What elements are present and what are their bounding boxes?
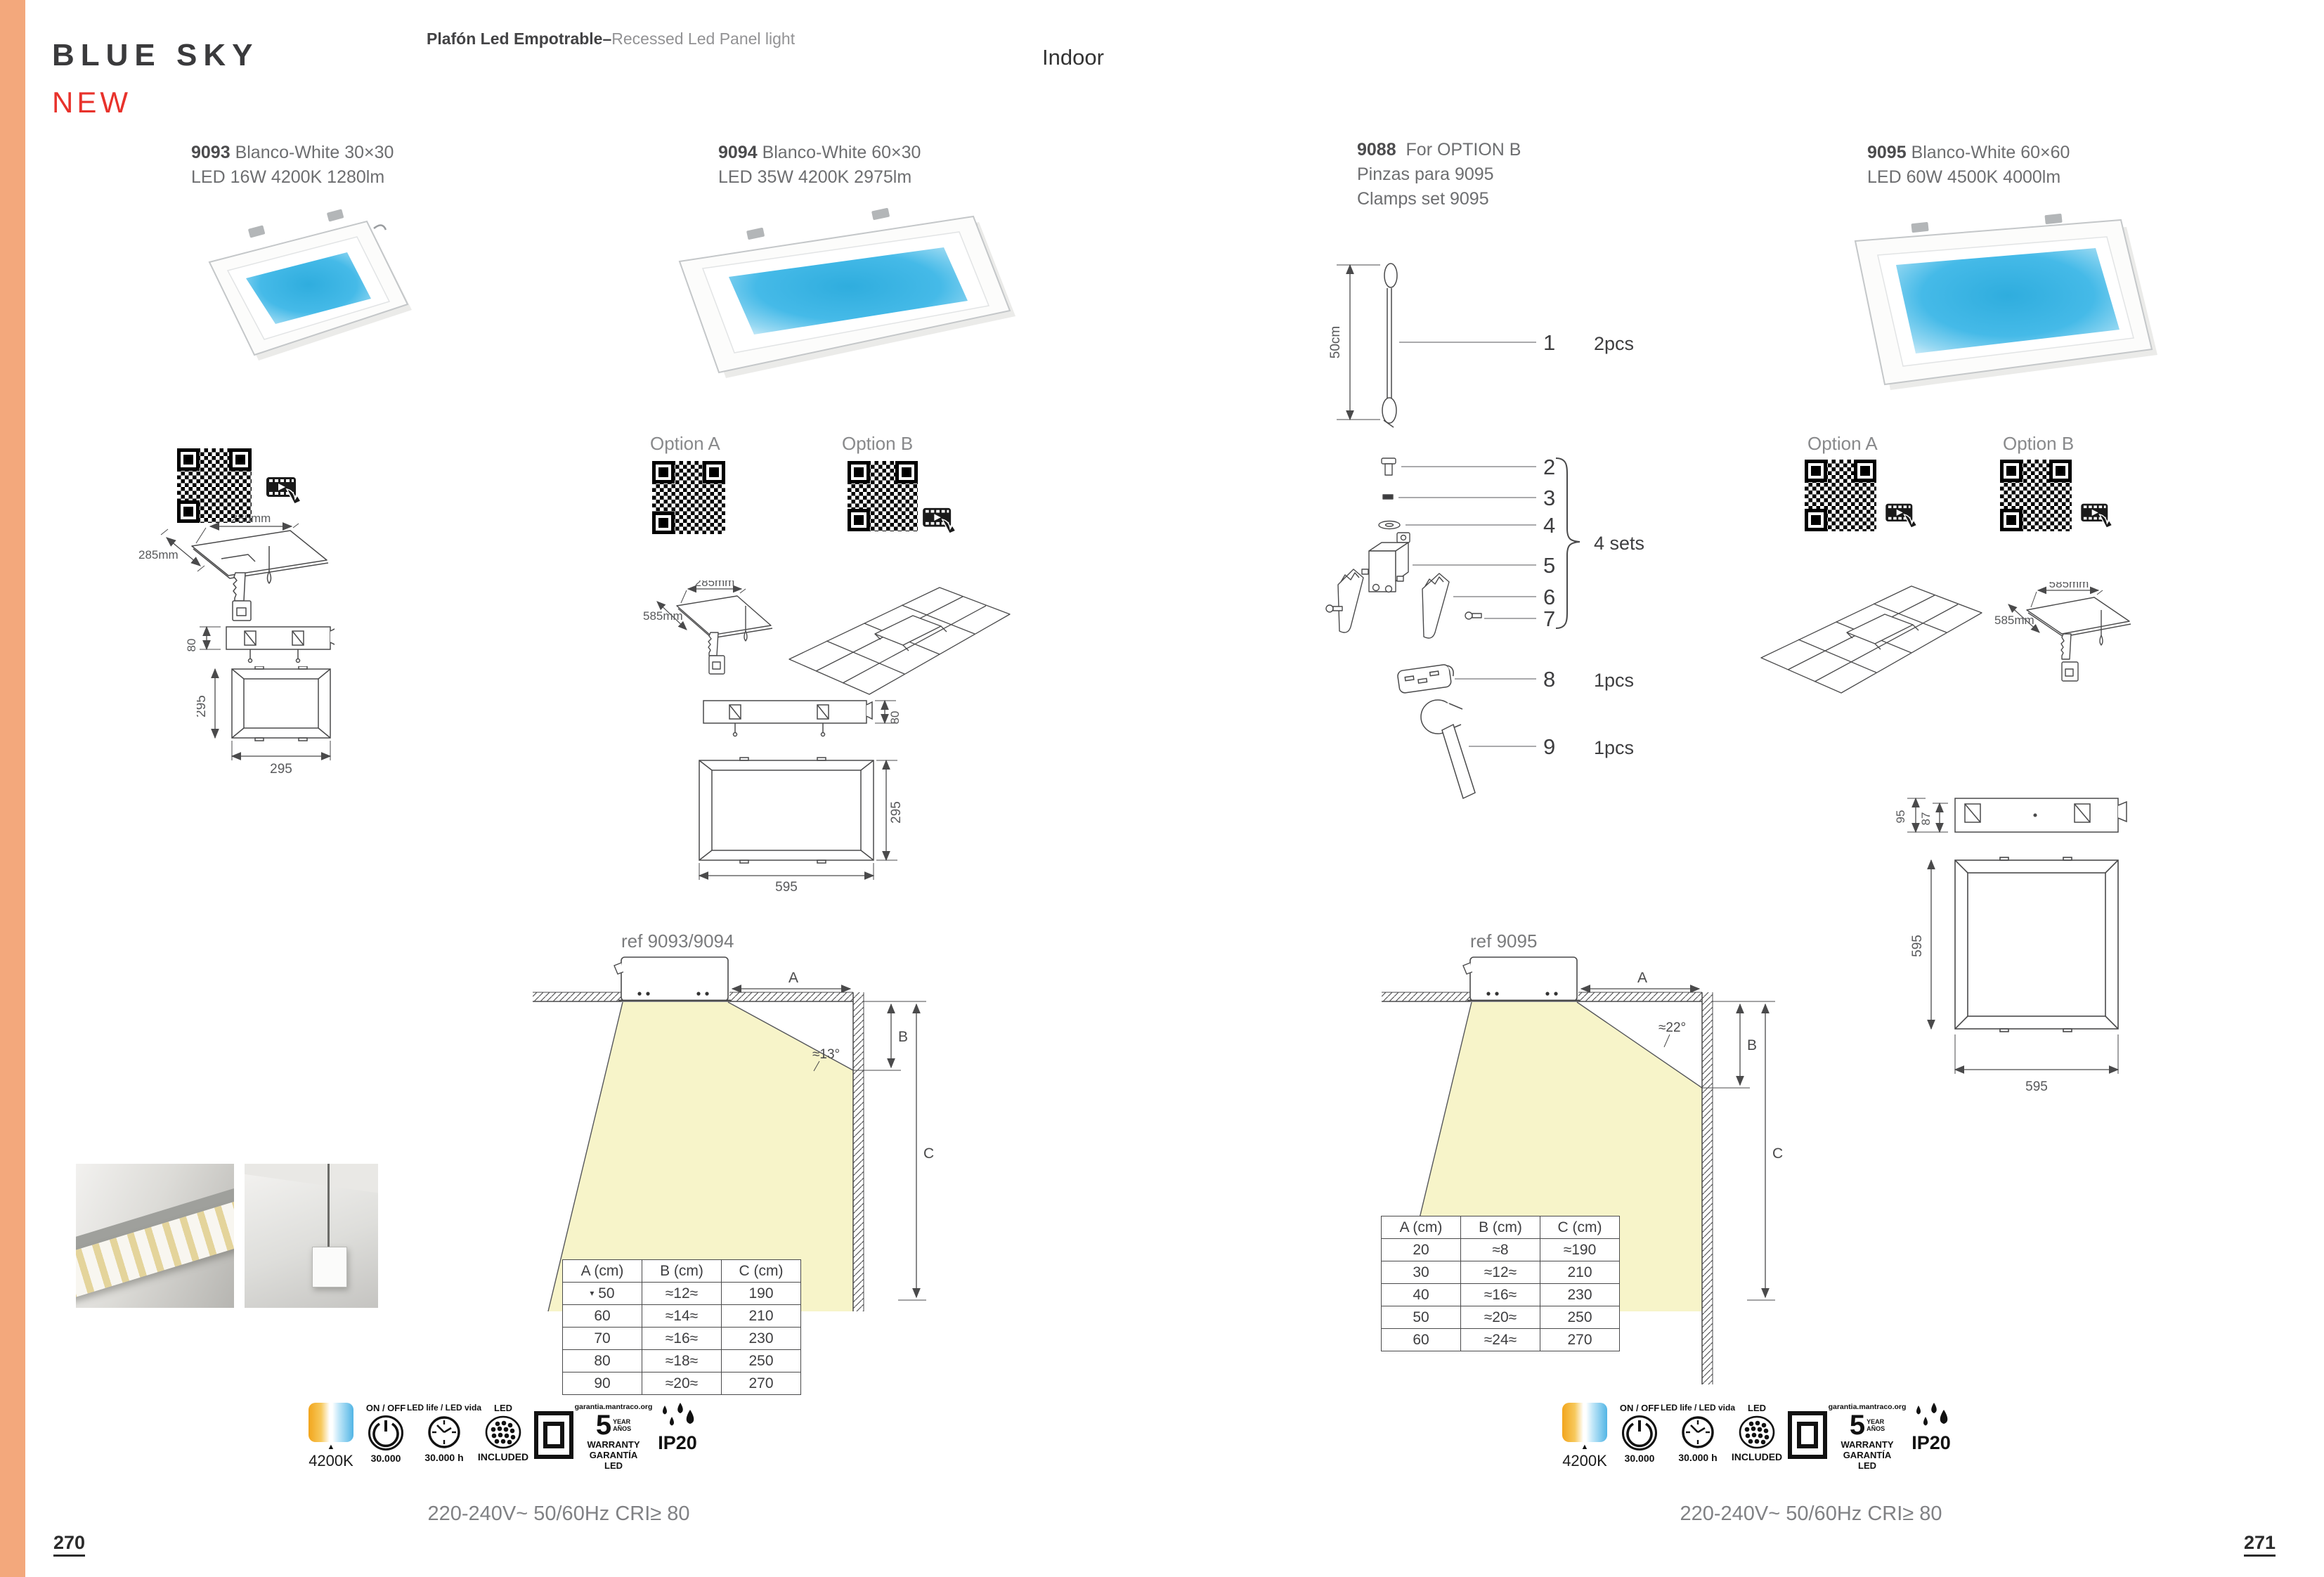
dim-87: 87 [1919,812,1933,826]
video-icon [1885,502,1917,528]
cell: ≈20≈ [1461,1306,1540,1329]
cell: ≈190 [1540,1239,1620,1261]
cell: 70 [563,1328,642,1350]
cell: ≈18≈ [642,1350,722,1372]
dim-285-top: 285mm [695,580,735,589]
dim-585-top: 585mm [2049,582,2089,590]
dim-80: 80 [187,639,198,652]
heading-9094: 9094 Blanco-White 60×30 LED 35W 4200K 29… [718,141,921,190]
double-square-icon [1788,1411,1827,1459]
spec-9093: LED 16W 4200K 1280lm [191,165,394,190]
clamp-qty-1: 2pcs [1594,333,1634,354]
table-row: 50 ≈20≈ 250 [1382,1306,1620,1329]
clock-icon [1680,1414,1716,1451]
cell: 230 [722,1328,801,1350]
ledlife-top-label: LED life / LED vida [1661,1403,1735,1413]
beam-a-label: A [1637,970,1647,986]
line3-9088: Clamps set 9095 [1357,187,1521,212]
dim-595-bottom: 595 [775,880,798,893]
cct-pointer-icon: ▲ [327,1443,335,1451]
table-row: 60 ≈14≈ 210 [563,1305,801,1328]
dim-295-left: 295 [197,695,209,718]
cell: ≈8 [1461,1239,1540,1261]
detail-photo-led-strip [76,1164,234,1308]
qr-finder-icon [1805,509,1827,531]
table-header: A (cm) [1382,1216,1461,1239]
warranty-line2: GARANTÍA [1843,1450,1892,1460]
led-included-icon: LED INCLUDED [1732,1403,1782,1481]
led-bottom-label: INCLUDED [1732,1451,1782,1462]
warranty-line1: WARRANTY [1841,1439,1893,1450]
clamp-item-7: 7 [1543,606,1555,631]
page-title: BLUE SKY [52,38,259,73]
ip-rating-icon: IP20 [1906,1403,1956,1481]
warranty-number: 5 [1850,1411,1865,1439]
option-a-label-9095: Option A [1807,433,1878,455]
heading-9093: 9093 Blanco-White 30×30 LED 16W 4200K 12… [191,141,394,190]
cell: ≈24≈ [1461,1329,1540,1351]
cct-icon: ▲ 4200K [305,1403,357,1481]
cell: ≈14≈ [642,1305,722,1328]
cutout-diagram-9093: 285mm 285mm [137,515,369,631]
cutout-diagram-9095: 585mm 585mm [1994,582,2142,712]
cell: 210 [1540,1261,1620,1284]
clamp-sets-label: 4 sets [1594,533,1644,554]
warranty-line3: LED [1858,1460,1876,1471]
warranty-line2: GARANTÍA [590,1450,638,1460]
video-icon [922,506,956,534]
dim-285-top: 285mm [231,515,271,525]
led-dots-icon [484,1415,522,1450]
led-top-label: LED [494,1403,512,1413]
onoff-bottom-label: 30.000 [371,1453,401,1464]
warranty-url-label: garantia.mantraco.org [1829,1403,1907,1411]
cutout-diagram-9094: 285mm 585mm [643,580,784,703]
cell: 230 [1540,1284,1620,1306]
led-life-icon: LED life / LED vida 30.000 h [1668,1403,1727,1481]
qr-finder-icon [848,509,870,531]
cell: 270 [722,1372,801,1395]
clamp-item-8: 8 [1543,667,1555,692]
option-b-label-9095: Option B [2003,433,2074,455]
qr-finder-icon [895,461,918,484]
water-drops-icon [655,1403,700,1432]
product-photo-9094 [664,204,1023,401]
class-ii-icon [1786,1403,1829,1481]
led-dots-icon [1738,1415,1776,1450]
qr-finder-icon [652,461,675,484]
beam-ref-label: ref 9093/9094 [621,930,734,952]
feature-icons-right: ▲ 4200K ON / OFF 30.000 LED life / LED v… [1559,1403,1956,1481]
cell: 250 [722,1350,801,1372]
beam-table-left: A (cm) B (cm) C (cm) ▾ 50 ≈12≈ 190 60 ≈1… [562,1259,801,1395]
warranty-line1: WARRANTY [587,1439,640,1450]
beam-angle: ≈22° [1658,1020,1686,1035]
table-row: 30 ≈12≈ 210 [1382,1261,1620,1284]
dim-595-bottom: 595 [2025,1079,2048,1094]
clamp-item-2: 2 [1543,455,1555,479]
page-number-right: 271 [2244,1532,2276,1557]
code-9095: 9095 [1867,143,1907,162]
side-view-9093: 80 [187,624,335,665]
option-b-label-9094: Option B [842,433,913,455]
beam-a-label: A [788,970,798,986]
power-icon [368,1415,404,1451]
category-label: Indoor [1042,45,1104,70]
qr-finder-icon [2000,460,2023,482]
dim-80: 80 [888,711,902,725]
onoff-top-label: ON / OFF [366,1403,405,1413]
clamp-qty-9: 1pcs [1594,737,1634,758]
cell: ≈16≈ [1461,1284,1540,1306]
table-header: C (cm) [1540,1216,1620,1239]
class-ii-icon [533,1403,575,1481]
spec-9095: LED 60W 4500K 4000lm [1867,165,2070,190]
qr-finder-icon [177,448,200,471]
code-9094: 9094 [718,143,758,162]
ledlife-bottom-label: 30.000 h [424,1452,463,1463]
dim-295-bottom: 295 [270,762,292,777]
cct-value: 4200K [309,1452,353,1470]
cct-icon: ▲ 4200K [1559,1403,1611,1481]
onoff-bottom-label: 30.000 [1625,1453,1655,1464]
warranty-anos-label: AÑOS [613,1425,631,1432]
cell: 20 [1382,1239,1461,1261]
beam-ref-label: ref 9095 [1470,930,1537,952]
qr-finder-icon [703,461,725,484]
qr-finder-icon [2049,460,2072,482]
cell: 90 [563,1372,642,1395]
table-row: 60 ≈24≈ 270 [1382,1329,1620,1351]
catalog-spread: BLUE SKY NEW Plafón Led Empotrable–Reces… [0,0,2324,1577]
dim-585-left: 585mm [643,609,683,623]
clamp-qty-8: 1pcs [1594,670,1634,691]
ledlife-bottom-label: 30.000 h [1678,1452,1717,1463]
dim-585-left: 585mm [1994,614,2034,627]
cell: 50 [1382,1306,1461,1329]
cell: 30 [1382,1261,1461,1284]
feature-icons-left: ▲ 4200K ON / OFF 30.000 LED life / LED v… [305,1403,703,1481]
warranty-year-label: YEAR [613,1418,631,1425]
ip-rating-label: IP20 [1911,1432,1951,1454]
cell: ≈12≈ [642,1283,722,1305]
new-badge: NEW [52,86,131,119]
spec-9094: LED 35W 4200K 2975lm [718,165,921,190]
qr-finder-icon [2000,509,2023,531]
cell: 190 [722,1283,801,1305]
heading-9088: 9088 For OPTION B Pinzas para 9095 Clamp… [1357,138,1521,212]
warranty-icon: garantia.mantraco.org 5 YEAR AÑOS WARRAN… [1833,1403,1902,1481]
panel-edge [245,1164,378,1198]
qr-finder-icon [652,512,675,534]
code-9088: 9088 [1357,140,1396,160]
table-header: B (cm) [642,1260,722,1283]
clamp-item-5: 5 [1543,553,1555,578]
dim-295-right: 295 [889,801,904,824]
product-photo-9095 [1834,200,2179,411]
warranty-url-label: garantia.mantraco.org [575,1403,653,1411]
dim-595-left: 595 [1910,935,1925,957]
table-header: C (cm) [722,1260,801,1283]
onoff-top-label: ON / OFF [1620,1403,1659,1413]
table-header: B (cm) [1461,1216,1540,1239]
onoff-cycles-icon: ON / OFF 30.000 [1615,1403,1664,1481]
video-icon [2080,502,2112,528]
page-accent-bar [0,0,25,1577]
warranty-line3: LED [604,1460,623,1471]
four-sets-brace [1556,458,1580,628]
cell: 210 [722,1305,801,1328]
clamp-item-4: 4 [1543,513,1555,538]
row-marker: ▾ [590,1288,594,1298]
dim-95: 95 [1895,810,1907,824]
front-view-9094: 295 595 [691,756,909,893]
clock-icon [426,1414,462,1451]
option-a-label-9094: Option A [650,433,720,455]
electrical-spec-left: 220-240V~ 50/60Hz CRI≥ 80 [390,1503,727,1526]
qr-code-9095-option-a [1805,460,1876,531]
led-life-icon: LED life / LED vida 30.000 h [415,1403,474,1481]
qr-code-9094-option-a [652,461,725,534]
grid-ceiling-diagram-9094 [784,580,1015,696]
clamp-item-9: 9 [1543,734,1555,759]
clamp-item-1: 1 [1543,330,1555,355]
subtitle-secondary: Recessed Led Panel light [611,30,795,48]
name-9095: Blanco-White 60×60 [1911,143,2070,162]
subtitle-primary: Plafón Led Empotrable– [427,30,611,48]
dim-285-left: 285mm [138,548,178,562]
table-row: 80 ≈18≈ 250 [563,1350,801,1372]
qr-finder-icon [1805,460,1827,482]
beam-c-label: C [923,1146,934,1162]
front-view-9093: 295 295 [197,666,348,777]
page-number-left: 270 [53,1532,85,1557]
cell: 50 [598,1285,614,1302]
table-row: 20 ≈8 ≈190 [1382,1239,1620,1261]
cct-pointer-icon: ▲ [1581,1443,1589,1451]
table-row: 40 ≈16≈ 230 [1382,1284,1620,1306]
onoff-cycles-icon: ON / OFF 30.000 [361,1403,410,1481]
double-square-icon [534,1411,573,1459]
video-icon [266,475,301,505]
cell: ≈20≈ [642,1372,722,1395]
clamp-item-6: 6 [1543,585,1555,609]
table-row: 90 ≈20≈ 270 [563,1372,801,1395]
qr-code-9095-option-b [2000,460,2072,531]
ledlife-top-label: LED life / LED vida [407,1403,481,1413]
cell: 80 [563,1350,642,1372]
dim-50cm: 50cm [1328,326,1343,358]
color-temperature-gradient-icon [309,1403,353,1442]
beam-table-right: A (cm) B (cm) C (cm) 20 ≈8 ≈190 30 ≈12≈ … [1381,1216,1620,1351]
line2-9088: Pinzas para 9095 [1357,162,1521,187]
power-icon [1621,1415,1658,1451]
code-9093: 9093 [191,143,231,162]
led-included-icon: LED INCLUDED [478,1403,528,1481]
grid-ceiling-diagram-9095 [1755,579,1987,695]
dimension-views-9095: 95 87 595 595 [1895,784,2151,1111]
warranty-number: 5 [596,1411,611,1439]
cell: 270 [1540,1329,1620,1351]
beam-angle: ≈13° [812,1047,840,1062]
cell: 40 [1382,1284,1461,1306]
ip-rating-label: IP20 [658,1432,697,1454]
cell: ≈16≈ [642,1328,722,1350]
cell: ≈12≈ [1461,1261,1540,1284]
beam-b-label: B [898,1029,908,1045]
led-top-label: LED [1748,1403,1766,1413]
water-drops-icon [1909,1403,1954,1432]
cell: 60 [563,1305,642,1328]
warranty-icon: garantia.mantraco.org 5 YEAR AÑOS WARRAN… [579,1403,648,1481]
qr-finder-icon [1854,460,1876,482]
subtitle: Plafón Led Empotrable–Recessed Led Panel… [427,30,795,48]
warranty-anos-label: AÑOS [1867,1425,1885,1432]
qr-finder-icon [229,448,252,471]
cell: 250 [1540,1306,1620,1329]
table-row: ▾ 50 ≈12≈ 190 [563,1283,801,1305]
product-photo-9093 [190,207,429,397]
clamp-item-3: 3 [1543,486,1555,510]
beam-b-label: B [1747,1037,1757,1053]
qr-finder-icon [848,461,870,484]
qr-code-9094-option-b [848,461,918,531]
table-header: A (cm) [563,1260,642,1283]
name-9093: Blanco-White 30×30 [235,143,394,162]
detail-photo-suspension [245,1164,378,1308]
clamps-exploded-diagram: 50cm 1 2pcs 2 3 4 5 [1318,247,1712,810]
heading-9095: 9095 Blanco-White 60×60 LED 60W 4500K 40… [1867,141,2070,190]
qr-code-9093 [177,448,252,523]
name-9088: For OPTION B [1406,140,1521,160]
side-view-9094: 80 [691,698,905,739]
name-9094: Blanco-White 60×30 [762,143,921,162]
ip-rating-icon: IP20 [652,1403,703,1481]
warranty-year-label: YEAR [1867,1418,1885,1425]
electrical-spec-right: 220-240V~ 50/60Hz CRI≥ 80 [1642,1503,1980,1526]
beam-c-label: C [1772,1146,1783,1162]
table-row: 70 ≈16≈ 230 [563,1328,801,1350]
driver-box [312,1247,347,1287]
cct-value: 4200K [1562,1452,1607,1470]
cell: 60 [1382,1329,1461,1351]
color-temperature-gradient-icon [1562,1403,1607,1442]
suspension-cable [327,1164,330,1254]
led-bottom-label: INCLUDED [478,1451,528,1462]
